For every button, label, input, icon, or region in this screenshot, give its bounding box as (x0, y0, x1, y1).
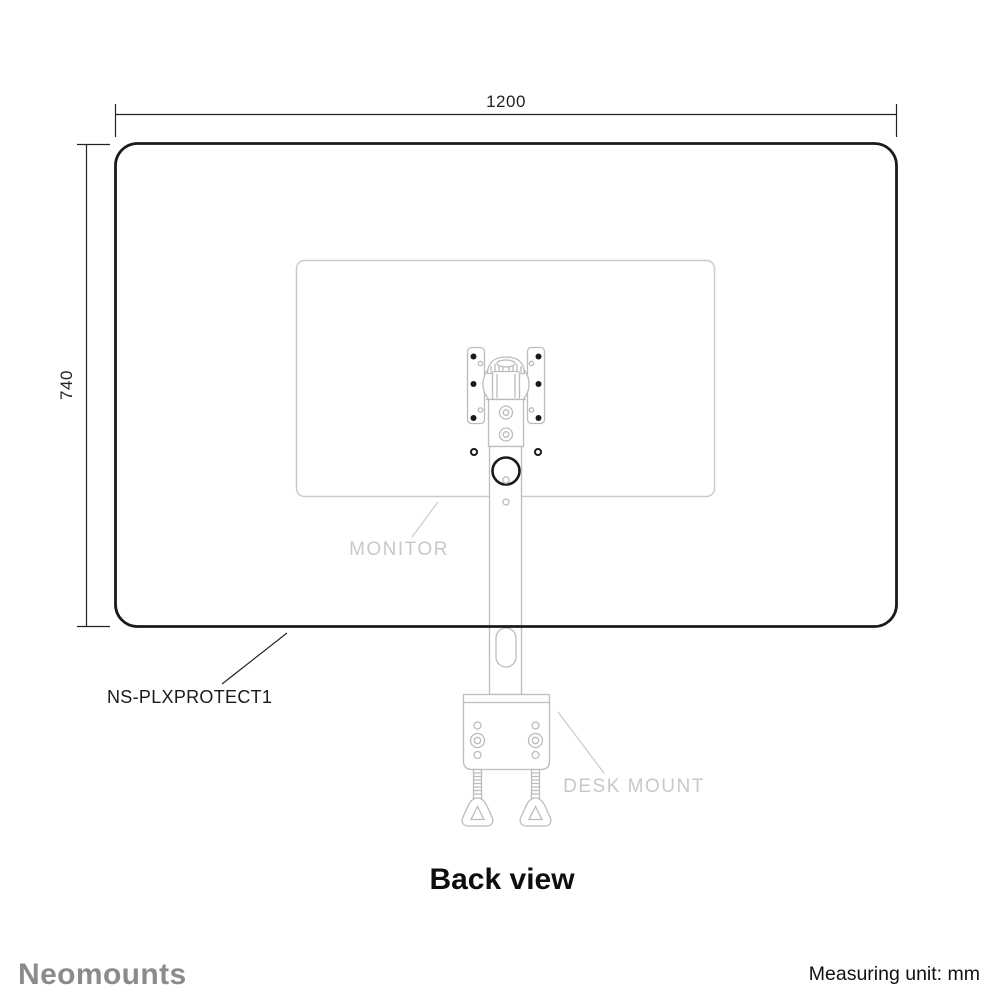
monitor-leader-line (412, 502, 438, 537)
knob-screw (503, 477, 509, 483)
clamp-top-cap (497, 360, 515, 367)
dimension-height-line (77, 144, 110, 627)
product-leader-line (222, 633, 287, 684)
height-dimension-label: 740 (57, 355, 79, 415)
monitor-callout-label: MONITOR (299, 539, 499, 561)
clamp-handle-left (462, 798, 493, 826)
side-screw-right (535, 449, 541, 455)
side-screw-left (471, 449, 477, 455)
measuring-unit-label: Measuring unit: mm (809, 963, 980, 986)
view-title: Back view (0, 863, 1004, 897)
desk-mount-leader-line (558, 712, 604, 773)
technical-drawing (0, 0, 1004, 1004)
brand-logo: Neomounts (18, 958, 187, 992)
width-dimension-label: 1200 (406, 92, 606, 112)
vesa-mount-assembly (462, 348, 551, 827)
clamp-rod-left (474, 770, 482, 799)
product-code-label: NS-PLXPROTECT1 (107, 687, 272, 708)
pole-hole (503, 499, 509, 505)
desk-mount-callout-label: DESK MOUNT (534, 776, 734, 798)
pole-slot (496, 628, 516, 667)
diagram-canvas: 1200 740 NS-PLXPROTECT1 MONITOR DESK MOU… (0, 0, 1004, 1004)
clamp-handle-right (520, 798, 551, 826)
